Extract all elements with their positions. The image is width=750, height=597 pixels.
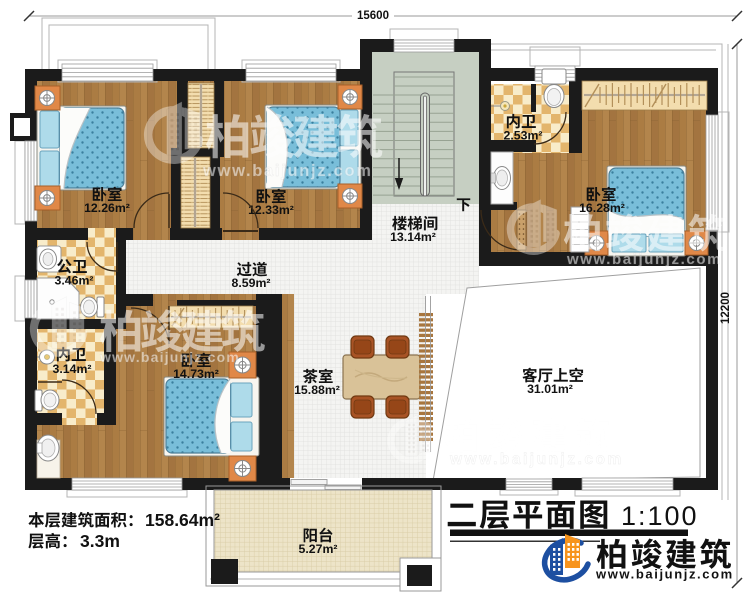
svg-text:8.59m²: 8.59m² <box>232 276 271 290</box>
svg-text:www.baijunjz.com: www.baijunjz.com <box>99 349 240 365</box>
svg-text:16.28m²: 16.28m² <box>579 201 625 215</box>
svg-text:1:100: 1:100 <box>621 501 699 531</box>
svg-text:3.46m²: 3.46m² <box>55 274 94 288</box>
svg-text:12.26m²: 12.26m² <box>84 201 130 215</box>
svg-text:15600: 15600 <box>357 10 389 22</box>
svg-text:5.27m²: 5.27m² <box>299 542 338 556</box>
svg-text:2.53m²: 2.53m² <box>504 129 543 143</box>
svg-text:31.01m²: 31.01m² <box>527 382 573 396</box>
svg-text:www.baijunjz.com: www.baijunjz.com <box>566 251 722 268</box>
svg-text:14.73m²: 14.73m² <box>173 367 219 381</box>
svg-text:3.14m²: 3.14m² <box>53 362 92 376</box>
svg-text:13.14m²: 13.14m² <box>390 230 436 244</box>
svg-text:www.baijunjz.com: www.baijunjz.com <box>595 567 734 582</box>
svg-text:15.88m²: 15.88m² <box>294 383 340 397</box>
svg-text:158.64m²: 158.64m² <box>145 510 220 530</box>
svg-text:www.baijunjz.com: www.baijunjz.com <box>449 451 624 468</box>
svg-text:3.3m: 3.3m <box>80 531 120 551</box>
svg-text:www.baijunjz.com: www.baijunjz.com <box>202 162 373 180</box>
svg-text:12200: 12200 <box>720 292 732 324</box>
